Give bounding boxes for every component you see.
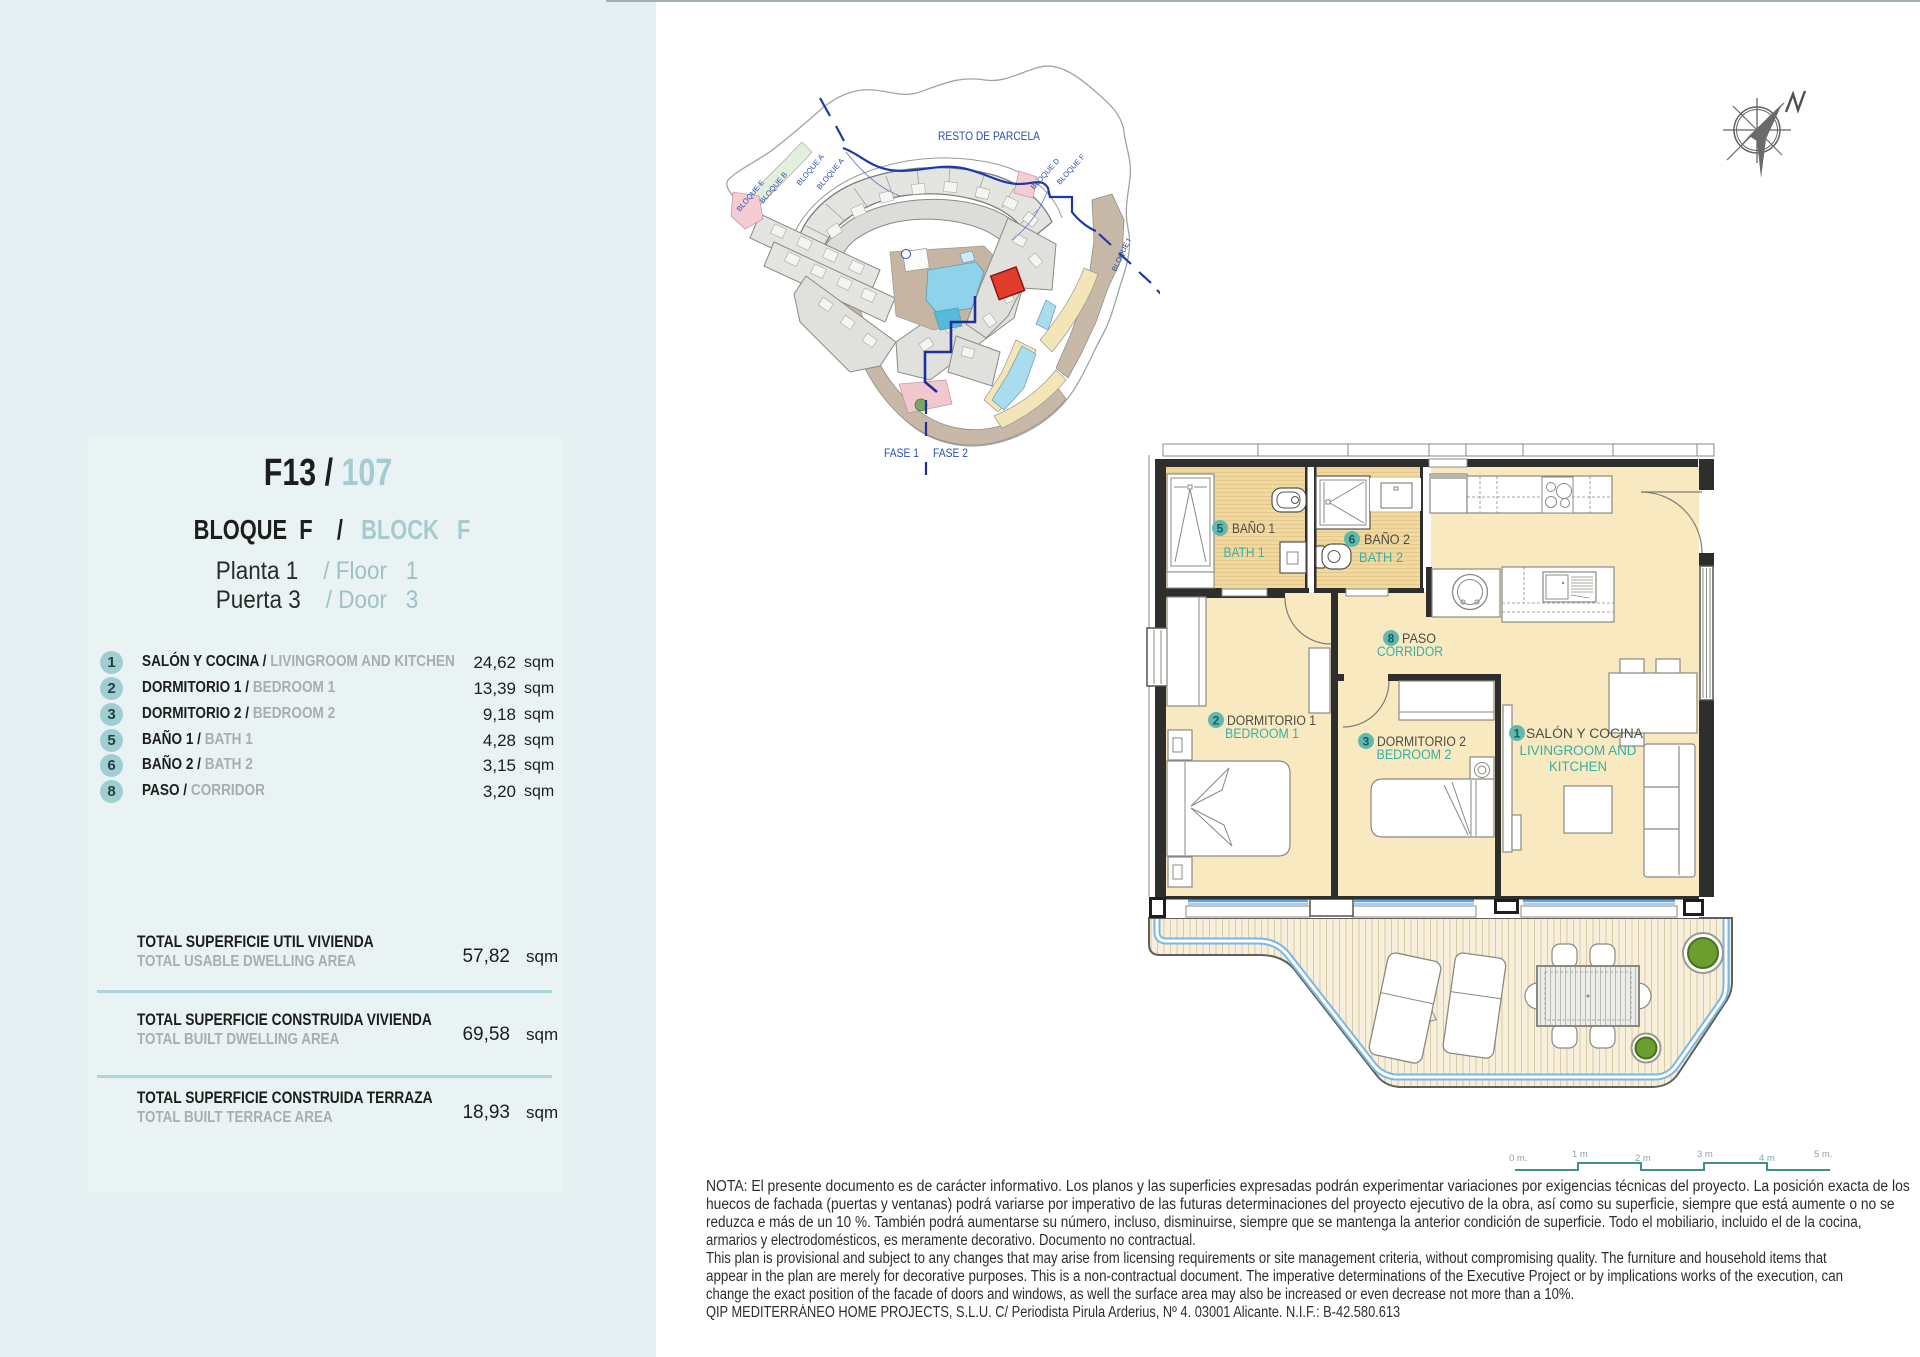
svg-text:0 m.: 0 m.	[1509, 1153, 1527, 1164]
svg-text:LIVINGROOM AND: LIVINGROOM AND	[1520, 743, 1637, 758]
svg-text:FASE 1: FASE 1	[884, 446, 919, 460]
svg-text:3 m: 3 m	[1697, 1149, 1713, 1160]
svg-text:2: 2	[1213, 714, 1220, 728]
svg-text:BATH 1: BATH 1	[1224, 545, 1265, 560]
svg-text:RESTO DE PARCELA: RESTO DE PARCELA	[938, 129, 1040, 143]
svg-text:CORRIDOR: CORRIDOR	[1377, 644, 1443, 659]
svg-text:KITCHEN: KITCHEN	[1549, 759, 1607, 774]
svg-text:BATH 2: BATH 2	[1359, 550, 1403, 565]
svg-text:6: 6	[1349, 533, 1356, 547]
svg-text:BAÑO 1: BAÑO 1	[1232, 521, 1275, 536]
svg-text:BEDROOM 1: BEDROOM 1	[1225, 726, 1299, 741]
svg-text:1: 1	[1514, 727, 1521, 741]
svg-text:5: 5	[1217, 522, 1224, 536]
svg-text:5 m.: 5 m.	[1814, 1149, 1832, 1160]
svg-text:FASE 2: FASE 2	[933, 446, 968, 460]
svg-text:BEDROOM 2: BEDROOM 2	[1377, 747, 1452, 762]
svg-text:3: 3	[1363, 735, 1370, 749]
svg-text:BAÑO 2: BAÑO 2	[1364, 532, 1410, 547]
svg-text:1 m: 1 m	[1572, 1149, 1588, 1160]
svg-text:SALÓN Y COCINA: SALÓN Y COCINA	[1526, 726, 1643, 741]
